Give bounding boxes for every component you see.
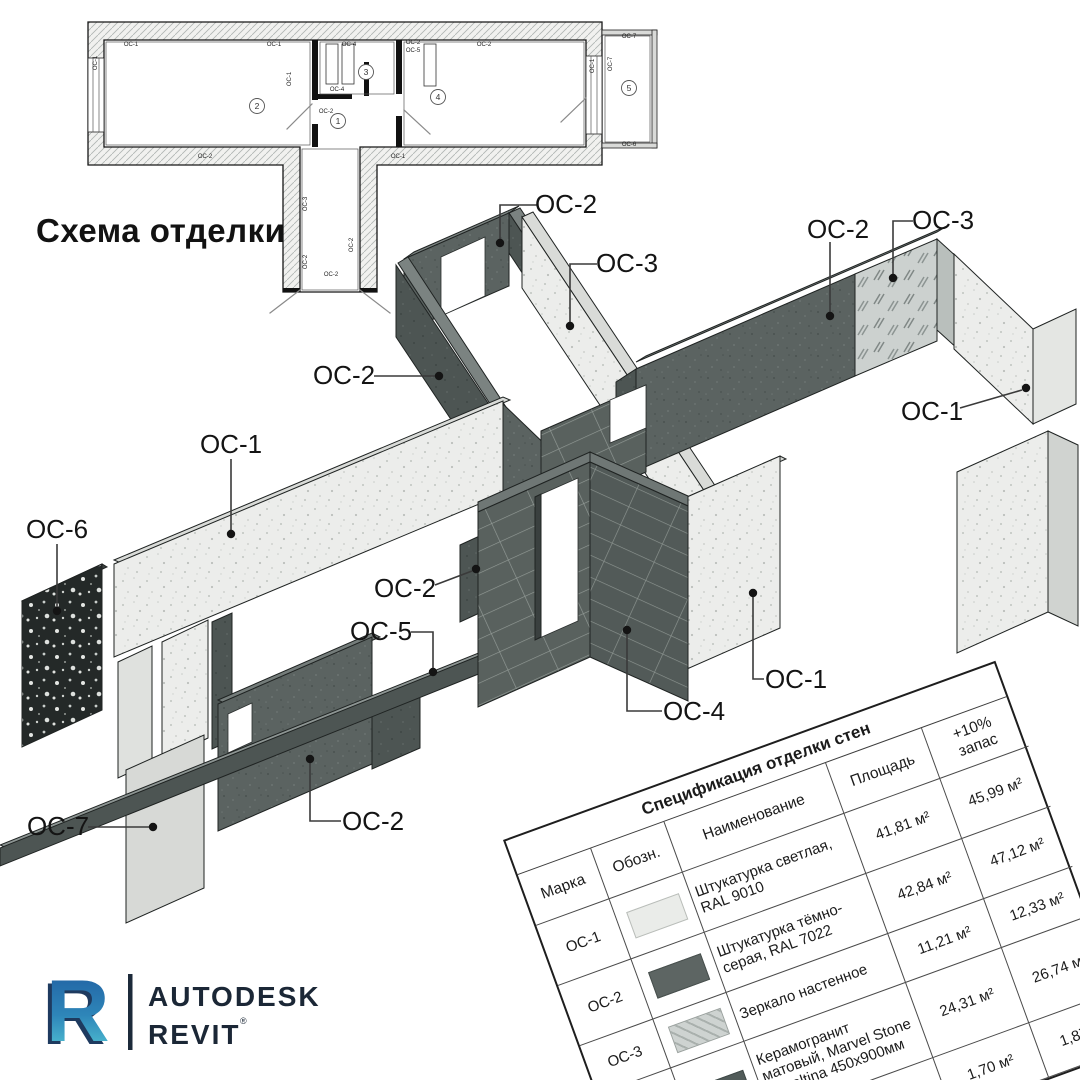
- logo-divider: [128, 974, 133, 1050]
- finish-label: ОС-2: [342, 806, 404, 836]
- finish-label: ОС-1: [765, 664, 827, 694]
- plan-tag: ОС-1: [267, 42, 282, 48]
- finish-label: ОС-3: [912, 205, 974, 235]
- revit-r-icon: R: [46, 961, 110, 1060]
- autodesk-revit-logo: R R AUTODESK REVIT ®: [28, 958, 328, 1078]
- finish-label: ОС-6: [26, 514, 88, 544]
- plan-tag: ОС-2: [319, 109, 334, 115]
- plan-tag: ОС-3: [303, 196, 309, 211]
- plan-tag: ОС-6: [622, 142, 637, 148]
- material-swatch: [690, 1069, 752, 1080]
- plan-tag: ОС-1: [590, 58, 596, 73]
- plan-tag: ОС-1: [391, 154, 406, 160]
- autodesk-wordmark: AUTODESK: [148, 981, 321, 1012]
- room-number: 4: [436, 92, 441, 102]
- room-number: 2: [255, 101, 260, 111]
- finish-label: ОС-2: [374, 573, 436, 603]
- finish-label: ОС-5: [350, 616, 412, 646]
- plan-tag: ОС-1: [287, 71, 293, 86]
- room-number: 1: [336, 116, 341, 126]
- plan-tag: ОС-2: [198, 154, 213, 160]
- plan-tag: ОС-5: [406, 48, 421, 54]
- plan-tag: ОС-1: [93, 55, 99, 70]
- page-title: Схема отделки: [36, 212, 285, 250]
- plan-room-numbers: 1 2 3 4 5: [250, 65, 637, 129]
- room-number: 5: [627, 83, 632, 93]
- finish-label: ОС-1: [200, 429, 262, 459]
- plan-tag: ОС-7: [608, 56, 614, 71]
- poster-canvas: 1 2 3 4 5 ОС-1 ОС-1 ОС-4 ОС-2 ОС-5 ОС-2 …: [0, 0, 1080, 1080]
- finish-label: ОС-2: [807, 214, 869, 244]
- plan-tag: ОС-7: [622, 34, 637, 40]
- plan-tag: ОС-2: [477, 42, 492, 48]
- plan-tag: ОС-4: [330, 87, 345, 93]
- finish-label: ОС-2: [535, 189, 597, 219]
- finish-label: ОС-4: [663, 696, 725, 726]
- plan-tag: ОС-4: [342, 42, 357, 48]
- material-swatch: [625, 893, 687, 938]
- plan-tag: ОС-2: [324, 272, 339, 278]
- material-swatch: [647, 953, 709, 998]
- material-swatch: [667, 1007, 729, 1052]
- finish-label: ОС-2: [313, 360, 375, 390]
- plan-tag: ОС-1: [124, 42, 139, 48]
- revit-wordmark: REVIT: [148, 1019, 240, 1050]
- plan-tag: ОС-2: [303, 254, 309, 269]
- plan-tag: ОС-2: [406, 40, 421, 46]
- room-number: 3: [364, 67, 369, 77]
- plan-tag: ОС-2: [349, 237, 355, 252]
- registered-mark: ®: [240, 1016, 247, 1026]
- finish-label: ОС-1: [901, 396, 963, 426]
- finish-label: ОС-7: [27, 811, 89, 841]
- finish-label: ОС-3: [596, 248, 658, 278]
